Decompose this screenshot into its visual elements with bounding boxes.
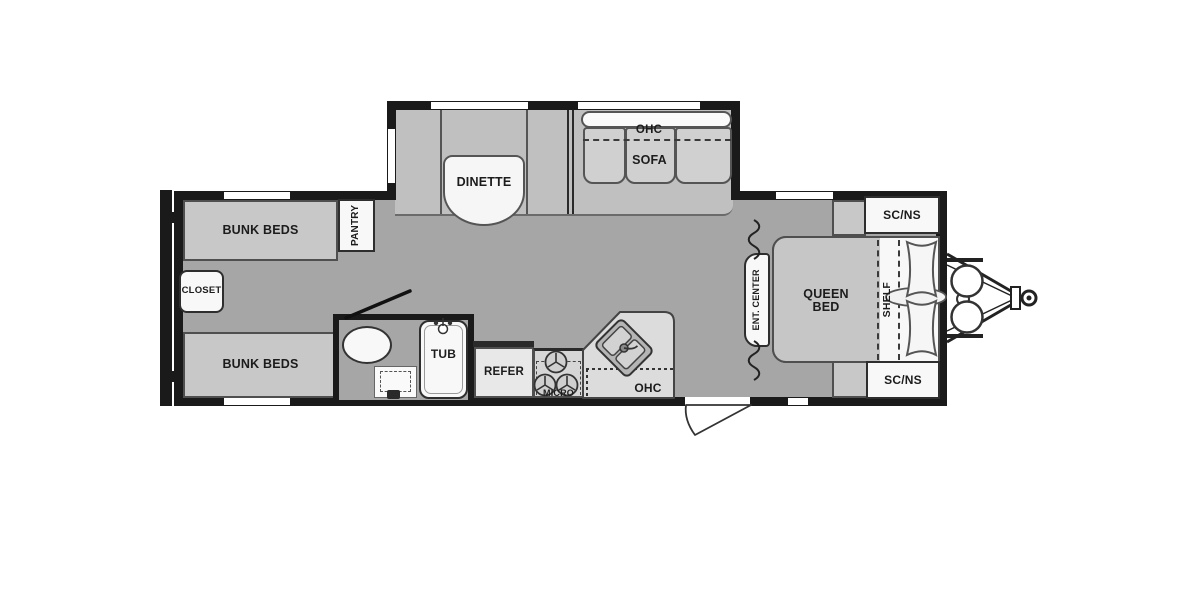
window-top-left (224, 192, 290, 199)
window-top-right (776, 192, 833, 199)
entertainment-center-label: ENT. CENTER (744, 253, 770, 347)
window-bottom-right (788, 398, 808, 405)
kitchen-ohc-label: OHC (626, 380, 670, 396)
toilet (342, 326, 392, 364)
propane-tank-top (952, 266, 983, 297)
window-slideout-sofa (578, 102, 700, 109)
sofa-ohc-dashed-line (583, 139, 731, 141)
sofa-cushion-1 (583, 127, 626, 184)
hitch-ball-outer (1022, 291, 1036, 305)
bunk-beds-top-label: BUNK BEDS (183, 200, 338, 261)
propane-tank-bottom (952, 302, 983, 333)
bedroom-cabinet-bottom (832, 361, 868, 398)
entry-door-gap (685, 397, 750, 406)
sofa-label: SOFA (622, 153, 677, 168)
pantry-label: PANTRY (338, 199, 375, 252)
slideout-wall-right (731, 101, 740, 200)
dinette-bench-divider-left (440, 110, 442, 214)
bedroom-cabinet-top (832, 200, 866, 236)
sofa-slide-divider (567, 110, 574, 214)
hitch-assembly (947, 254, 1036, 342)
bath-sink-basin (380, 371, 411, 392)
refer-label: REFER (474, 347, 534, 398)
bunk-beds-bottom-label: BUNK BEDS (183, 332, 338, 398)
floorplan-canvas: BUNK BEDS PANTRY CLOSET BUNK BEDS DINETT… (0, 0, 1200, 600)
window-slideout-left (388, 129, 395, 183)
entry-door-swing (686, 405, 751, 435)
window-bottom-left (224, 398, 290, 405)
bath-sink-faucet (387, 390, 400, 399)
hitch-ball-inner (1027, 296, 1032, 301)
scns-bottom-label: SC/NS (866, 361, 940, 399)
shelf-label: SHELF (876, 240, 900, 360)
sofa-ohc-label: OHC (628, 123, 670, 137)
propane-tank-link (957, 293, 969, 305)
micro-label: MICRO (531, 387, 586, 400)
queen-bed-label: QUEEN BED (772, 272, 880, 330)
scns-top-label: SC/NS (864, 196, 940, 234)
rear-bumper-mount-bottom (171, 371, 176, 382)
coupler-bracket (1011, 287, 1020, 309)
sofa-cushion-3 (675, 127, 732, 184)
dinette-bench-divider-right (526, 110, 528, 214)
tub-label: TUB (419, 334, 468, 374)
rear-bumper-mount-top (171, 212, 176, 223)
dinette-label: DINETTE (443, 160, 525, 205)
closet-label: CLOSET (179, 270, 224, 313)
window-slideout-dinette (431, 102, 528, 109)
